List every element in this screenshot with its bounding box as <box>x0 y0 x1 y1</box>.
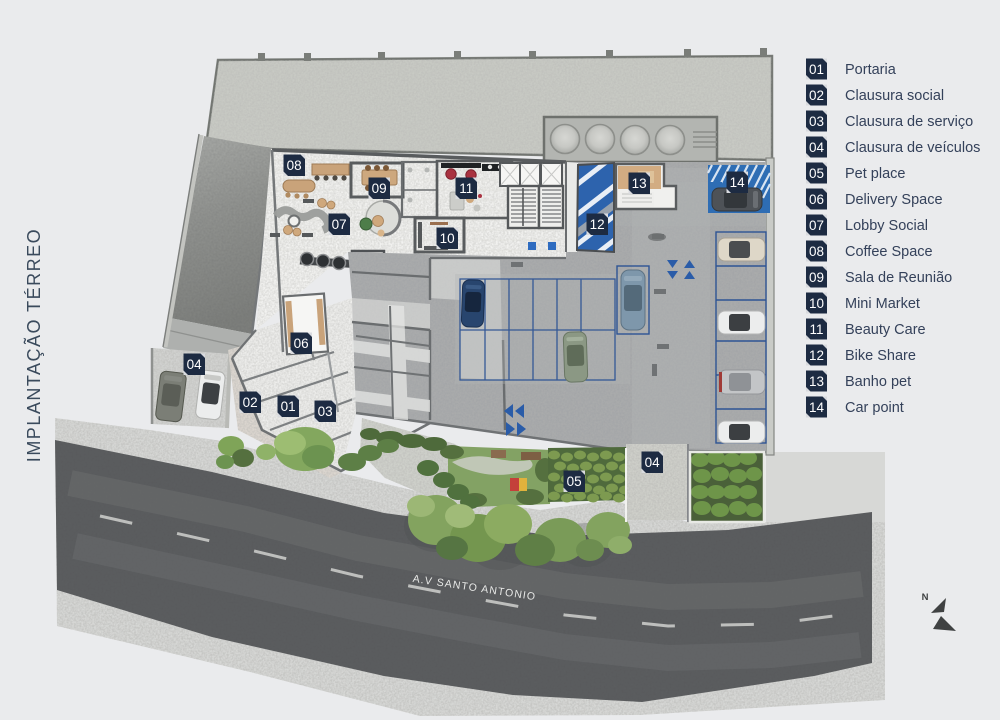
svg-text:01: 01 <box>809 62 824 77</box>
svg-text:Beauty Care: Beauty Care <box>845 322 926 338</box>
svg-text:02: 02 <box>243 395 258 410</box>
svg-text:14: 14 <box>730 175 746 190</box>
svg-text:09: 09 <box>809 270 824 285</box>
svg-text:N: N <box>922 592 929 603</box>
svg-text:10: 10 <box>809 296 824 311</box>
svg-text:07: 07 <box>332 217 347 232</box>
svg-text:05: 05 <box>567 474 582 489</box>
svg-text:12: 12 <box>809 348 824 363</box>
svg-text:02: 02 <box>809 88 824 103</box>
svg-text:07: 07 <box>809 218 824 233</box>
svg-text:Sala de Reunião: Sala de Reunião <box>845 270 952 286</box>
svg-text:04: 04 <box>809 140 825 155</box>
svg-text:01: 01 <box>281 399 296 414</box>
svg-text:03: 03 <box>318 404 333 419</box>
svg-text:10: 10 <box>440 231 455 246</box>
svg-text:Portaria: Portaria <box>845 62 897 78</box>
svg-text:Delivery Space: Delivery Space <box>845 192 943 208</box>
svg-text:03: 03 <box>809 114 824 129</box>
svg-text:09: 09 <box>372 181 387 196</box>
svg-text:06: 06 <box>294 336 309 351</box>
svg-text:13: 13 <box>809 374 824 389</box>
svg-text:Mini Market: Mini Market <box>845 296 920 312</box>
svg-text:Clausura de serviço: Clausura de serviço <box>845 114 973 130</box>
svg-text:Clausura social: Clausura social <box>845 88 944 104</box>
svg-text:Clausura de veículos: Clausura de veículos <box>845 140 980 156</box>
svg-text:11: 11 <box>809 322 823 337</box>
svg-text:06: 06 <box>809 192 824 207</box>
svg-text:04: 04 <box>187 357 203 372</box>
svg-text:13: 13 <box>632 176 647 191</box>
svg-text:12: 12 <box>590 217 605 232</box>
svg-text:Banho pet: Banho pet <box>845 374 911 390</box>
svg-text:05: 05 <box>809 166 824 181</box>
svg-text:04: 04 <box>645 455 661 470</box>
svg-text:14: 14 <box>809 400 825 415</box>
svg-text:Pet place: Pet place <box>845 166 905 182</box>
svg-text:08: 08 <box>809 244 824 259</box>
svg-text:Car point: Car point <box>845 400 904 416</box>
svg-text:Bike Share: Bike Share <box>845 348 916 364</box>
svg-text:IMPLANTAÇÃO TÉRREO: IMPLANTAÇÃO TÉRREO <box>23 228 44 462</box>
svg-text:11: 11 <box>459 181 473 196</box>
svg-text:Lobby Social: Lobby Social <box>845 218 928 234</box>
svg-text:Coffee Space: Coffee Space <box>845 244 933 260</box>
svg-text:08: 08 <box>287 158 302 173</box>
